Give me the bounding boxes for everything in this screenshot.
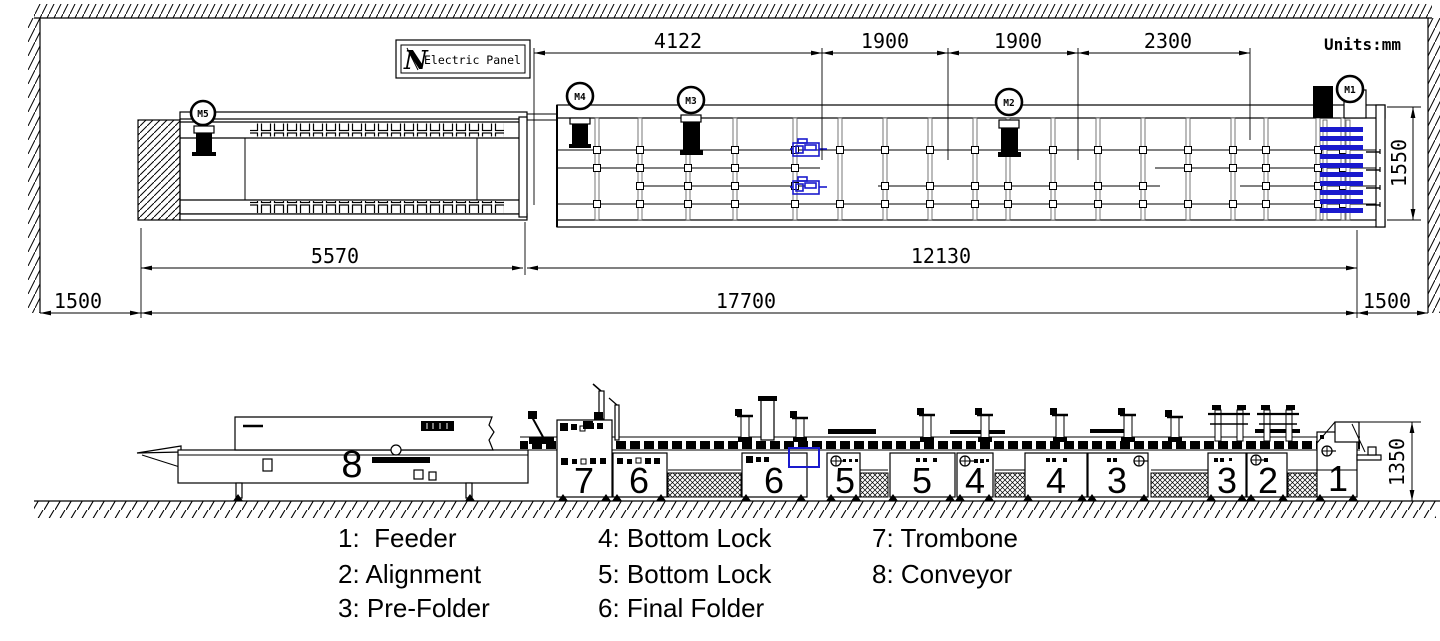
motor-m5-label: M5	[197, 109, 209, 120]
motor-m2-label: M2	[1003, 98, 1014, 109]
legend: 1: Feeder 2: Alignment 3: Pre-Folder 4: …	[338, 523, 1018, 623]
dim-conveyor-5570: 5570	[311, 244, 359, 268]
elevation-belt	[520, 429, 1360, 450]
dim-total-17700: 17700	[716, 289, 776, 313]
press-posts	[735, 405, 1299, 442]
dim-machine-12130: 12130	[911, 244, 971, 268]
section-4b-label: 4	[1046, 460, 1066, 501]
legend-item-7: 7: Trombone	[872, 523, 1018, 553]
section-3a-label: 3	[1107, 460, 1127, 501]
section-5a-label: 5	[835, 460, 855, 501]
dim-width-1550: 1550	[1387, 139, 1411, 187]
elevation-view: 8 7 6 6 5 5 4 4 3 3 2 1 1350	[34, 384, 1440, 518]
dim-right-1500: 1500	[1363, 289, 1411, 313]
motor-m5: M5	[191, 101, 216, 156]
motor-m4-label: M4	[574, 92, 586, 103]
wall-hatch-left	[28, 18, 40, 313]
ground-hatching	[34, 501, 1436, 518]
section-3b-label: 3	[1217, 460, 1237, 501]
legend-item-4: 4: Bottom Lock	[598, 523, 772, 553]
legend-item-2: 2: Alignment	[338, 559, 482, 589]
section-5b-label: 5	[912, 460, 932, 501]
legend-item-1: 1: Feeder	[338, 523, 457, 553]
legend-item-3: 3: Pre-Folder	[338, 593, 490, 623]
electric-panel-box: N Electric Panel	[396, 40, 530, 78]
plan-frame-rails	[557, 150, 1377, 204]
legend-item-8: 8: Conveyor	[872, 559, 1013, 589]
plan-conveyor-hatch-block	[138, 120, 180, 220]
dim-top-2300: 2300	[1144, 29, 1192, 53]
section-6b-label: 6	[764, 460, 784, 501]
motor-m3-label: M3	[685, 96, 697, 107]
section-2-label: 2	[1258, 460, 1278, 501]
chimney-post	[761, 400, 774, 440]
legend-item-5: 5: Bottom Lock	[598, 559, 772, 589]
motor-m2: M2	[996, 89, 1022, 157]
motor-m1-label: M1	[1344, 85, 1356, 96]
elevation-conveyor	[137, 417, 528, 498]
legend-item-6: 6: Final Folder	[598, 593, 765, 623]
dim-height-1350: 1350	[1385, 438, 1409, 486]
units-note: Units:mm	[1324, 35, 1401, 54]
section-7-label: 7	[574, 460, 594, 501]
dim-top-4122: 4122	[654, 29, 702, 53]
plan-machine-frame	[557, 105, 1385, 227]
conveyor-cover	[235, 417, 494, 450]
dim-left-1500: 1500	[54, 289, 102, 313]
section-8-label: 8	[341, 444, 362, 486]
machine-layout-drawing: Units:mm N Electric Panel M5	[0, 0, 1440, 641]
wall-hatch-right	[1428, 18, 1440, 313]
brand-label	[421, 421, 454, 431]
dim-top-1900-a: 1900	[861, 29, 909, 53]
electric-panel-label: Electric Panel	[424, 53, 521, 67]
section-6a-label: 6	[629, 460, 649, 501]
wall-hatch-top	[34, 4, 1432, 18]
motor-m3: M3	[678, 87, 704, 155]
conveyor-cleats-top	[250, 124, 504, 137]
dim-top-1900-b: 1900	[994, 29, 1042, 53]
section-1-label: 1	[1328, 458, 1348, 499]
conveyor-cleats-bottom	[250, 201, 504, 213]
section-4a-label: 4	[965, 460, 985, 501]
extension-lines	[141, 48, 1357, 318]
